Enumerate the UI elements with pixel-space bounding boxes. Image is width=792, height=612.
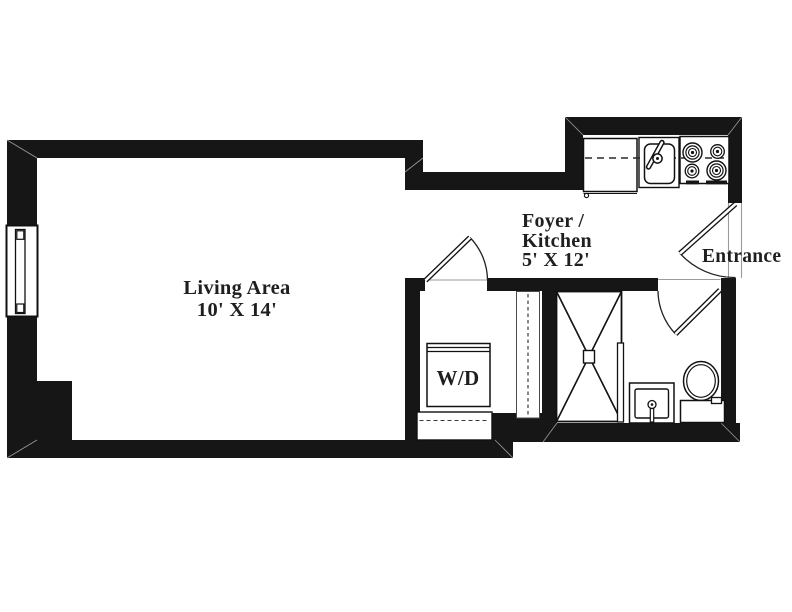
bathroom-door-arc bbox=[658, 291, 676, 334]
bathroom-door-leaf-inner bbox=[676, 290, 721, 334]
toilet-bowl-outer bbox=[684, 362, 719, 401]
refrigerator bbox=[584, 139, 638, 192]
shower-drain-box bbox=[584, 351, 595, 364]
floorplan-drawing: Living Area 10' X 14' Foyer / Kitchen 5'… bbox=[0, 0, 792, 612]
burner-top-right bbox=[711, 145, 725, 159]
floorplan: Living Area 10' X 14' Foyer / Kitchen 5'… bbox=[0, 0, 792, 612]
stove-foot-left bbox=[686, 181, 699, 185]
burner-bottom-right bbox=[707, 161, 726, 180]
foyer-dims: 5' X 12' bbox=[522, 249, 590, 271]
stove-foot-right bbox=[706, 181, 727, 185]
wall-living-top bbox=[7, 140, 423, 158]
window bbox=[7, 226, 38, 317]
wall-left-upper bbox=[7, 140, 37, 225]
living-area-dims: 10' X 14' bbox=[197, 299, 277, 321]
wall-kitchen-top bbox=[565, 117, 742, 135]
entrance-label: Entrance bbox=[702, 246, 781, 267]
burner-top-left bbox=[683, 143, 702, 162]
laundry-door-arc bbox=[470, 238, 488, 281]
window-sash-stop-bottom bbox=[17, 304, 24, 313]
washer-dryer-label: W/D bbox=[437, 366, 480, 390]
refrigerator-hinge-dot bbox=[584, 193, 588, 197]
wall-left-mid bbox=[7, 317, 37, 381]
window-sash bbox=[16, 230, 26, 314]
wall-bottom-living bbox=[7, 440, 513, 458]
laundry-door bbox=[426, 238, 488, 281]
window-sash-stop-top bbox=[17, 231, 24, 240]
burner-bottom-left bbox=[685, 164, 699, 178]
wall-right-upper bbox=[728, 117, 742, 203]
wall-bathroom-bottom bbox=[543, 423, 740, 442]
toilet-flush-handle bbox=[712, 398, 722, 404]
foyer-label-line1: Foyer / bbox=[522, 210, 584, 232]
kitchen-sink-drain-dot bbox=[656, 157, 659, 160]
wall-hall-bathroom-top bbox=[487, 278, 658, 291]
shower-door-panel bbox=[618, 343, 624, 422]
laundry-drawer bbox=[417, 412, 492, 440]
wall-bathroom-left bbox=[542, 291, 557, 425]
wall-laundry-left-cap bbox=[405, 278, 425, 291]
kitchen bbox=[584, 137, 730, 198]
bathroom-door bbox=[658, 290, 720, 334]
laundry-door-leaf-inner bbox=[426, 238, 471, 281]
wall-foyer-top bbox=[405, 172, 565, 190]
living-area-label: Living Area bbox=[183, 277, 290, 299]
bath-sink-faucet-dot bbox=[651, 403, 654, 406]
bath-sink-faucet-stem bbox=[650, 409, 653, 423]
